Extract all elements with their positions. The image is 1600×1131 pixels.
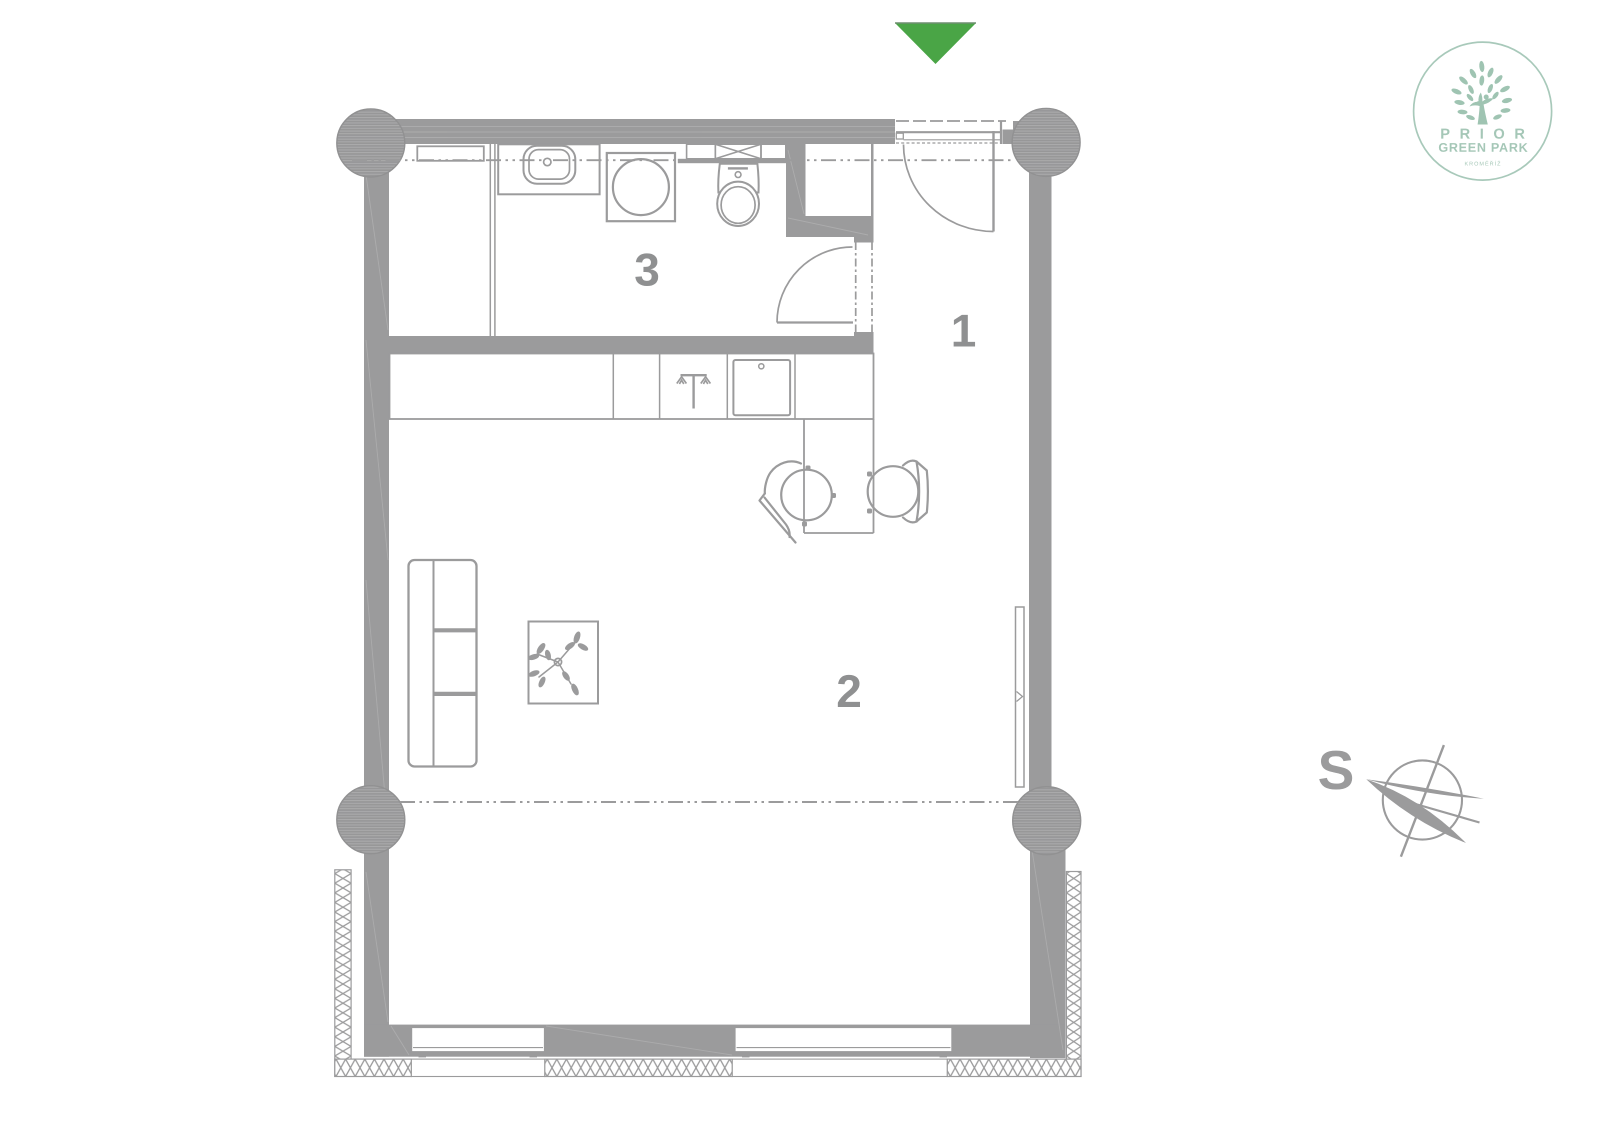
svg-text:3: 3 <box>634 243 660 295</box>
svg-text:2: 2 <box>836 665 862 717</box>
svg-text:S: S <box>1318 739 1355 801</box>
svg-text:GREEN PARK: GREEN PARK <box>1438 141 1528 155</box>
svg-text:1: 1 <box>951 304 977 356</box>
svg-text:KROMĚŘÍŽ: KROMĚŘÍŽ <box>1464 159 1501 167</box>
